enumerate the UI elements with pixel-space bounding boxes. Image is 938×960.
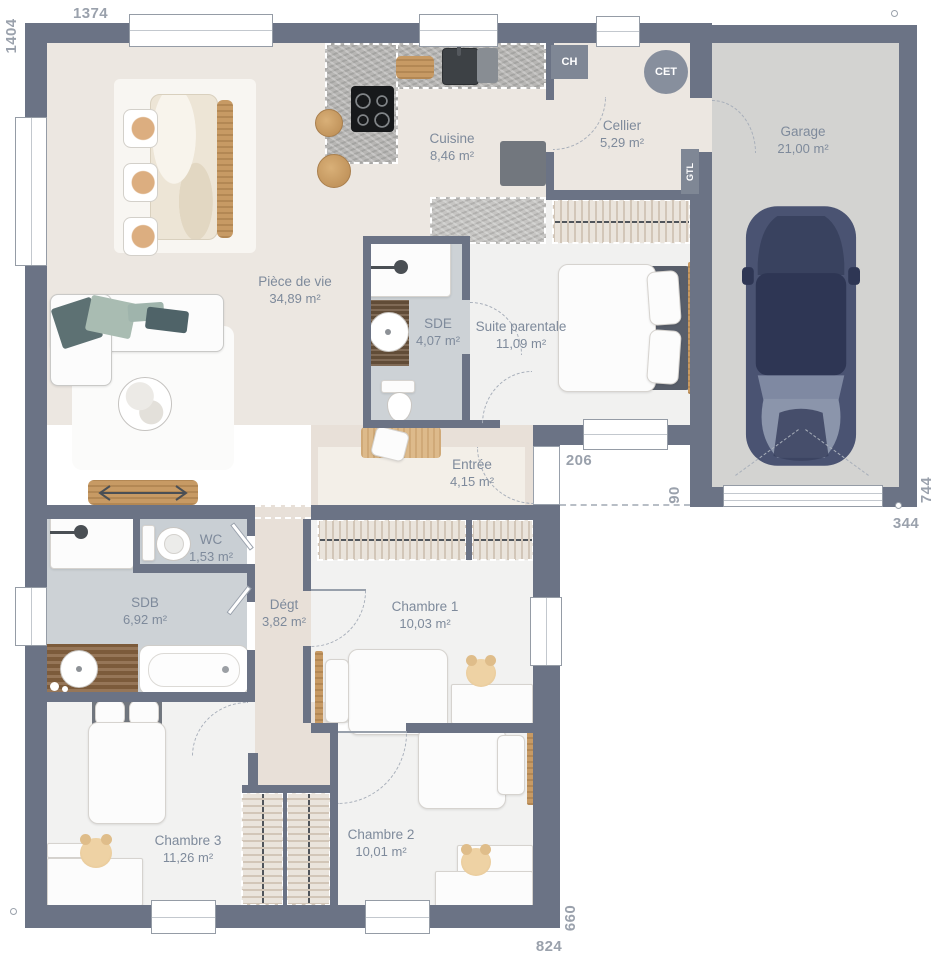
ch1-headboard <box>315 651 323 733</box>
dining-table <box>150 94 218 240</box>
room-label-garage: Garage 21,00 m² <box>733 123 873 157</box>
room-label-chambre2: Chambre 2 10,01 m² <box>311 826 451 860</box>
cutting-board <box>396 56 434 79</box>
window-living-top <box>129 14 273 47</box>
ch2-pillow <box>497 735 525 795</box>
room-label-chambre1: Chambre 1 10,03 m² <box>355 598 495 632</box>
sde-shower-head <box>394 260 408 274</box>
ch3-duvet <box>88 722 166 824</box>
window-kitchen-top <box>419 14 498 47</box>
dimension-garage-width: 344 <box>876 516 936 532</box>
dimension-bottom-width: 824 <box>519 939 579 955</box>
room-name: Garage <box>733 123 873 140</box>
wall-sde-right-b <box>462 354 470 428</box>
ch2-duvet <box>418 727 506 809</box>
teddy-bear <box>466 659 496 687</box>
room-label-chambre3: Chambre 3 11,26 m² <box>118 832 258 866</box>
room-area: 11,26 m² <box>118 849 258 866</box>
wall-exterior-bottom <box>25 905 560 928</box>
wall-wardrobe-top <box>242 785 338 793</box>
teddy-bear <box>461 848 491 876</box>
wall-ch1-ch2-a <box>311 723 338 733</box>
room-label-sdb: SDB 6,92 m² <box>75 594 215 628</box>
floor-plan: CH CET GTL Pièce de vie 34,89 m² Cuisine… <box>0 0 938 960</box>
window-suite-porch <box>583 419 668 450</box>
room-name: Dégt <box>214 596 354 613</box>
teddy-ear <box>461 844 472 855</box>
teddy-ear <box>101 834 112 845</box>
teddy-ear <box>480 844 491 855</box>
bathtub-drain <box>222 666 229 673</box>
opening-entree-corridor <box>255 505 311 519</box>
room-label-entree: Entrée 4,15 m² <box>402 456 542 490</box>
room-name: Chambre 3 <box>118 832 258 849</box>
electrical-column-label: GTL <box>685 163 695 181</box>
dimension-left-height: 1404 <box>4 1 20 71</box>
window-sdb-left <box>15 587 47 646</box>
room-label-degagement: Dégt 3,82 m² <box>214 596 354 630</box>
dimension-garage-side: 744 <box>919 460 935 520</box>
room-area: 8,46 m² <box>382 147 522 164</box>
sdb-sink-drain <box>76 666 82 672</box>
teddy-ear <box>485 655 496 666</box>
stove <box>351 86 394 132</box>
wall-chambre1-top <box>311 505 533 520</box>
wall-wc-bottom <box>133 564 255 573</box>
wall-sde-right-a <box>462 236 470 300</box>
room-name: Cellier <box>552 117 692 134</box>
water-heater-label: CET <box>655 66 677 78</box>
dining-chair <box>123 217 158 256</box>
room-name: Pièce de vie <box>225 273 365 290</box>
wall-ch1-left-b <box>303 646 311 723</box>
dimension-value: 1404 <box>3 19 20 54</box>
room-area: 1,53 m² <box>141 548 281 565</box>
survey-marker <box>10 908 17 915</box>
wall-sdb-bottom <box>25 692 255 702</box>
wall-ch3-ch2 <box>330 723 338 905</box>
window-living-left <box>15 117 47 266</box>
garage-door <box>723 485 883 507</box>
wall-sde-top <box>363 236 470 244</box>
room-name: Suite parentale <box>451 318 591 335</box>
window-cellier-top <box>596 16 640 47</box>
suite-pillow <box>646 270 682 326</box>
dimension-porch-depth: 90 <box>667 465 683 525</box>
dimension-value: 206 <box>566 452 592 469</box>
closet-chambre1-b <box>472 520 533 560</box>
dining-chair <box>123 109 158 148</box>
dimension-value: 90 <box>666 486 683 504</box>
dimension-top-width: 1374 <box>73 6 143 22</box>
stool <box>317 154 351 188</box>
closet-divider-ch3 <box>283 793 287 905</box>
sdb-soap-dish <box>50 682 59 691</box>
teddy-ear <box>80 834 91 845</box>
room-label-wc: WC 1,53 m² <box>141 531 281 565</box>
electrical-column-box: GTL <box>681 149 699 194</box>
ch1-desk <box>451 684 533 724</box>
water-heater-circle: CET <box>644 50 688 94</box>
wall-sde-bottom <box>363 420 470 428</box>
boiler-box: CH <box>551 45 588 79</box>
room-area: 34,89 m² <box>225 290 365 307</box>
room-area: 6,92 m² <box>75 611 215 628</box>
sdb-shower-head <box>74 525 88 539</box>
wall-hall-top-left <box>25 505 255 519</box>
sdb-shower <box>50 515 134 569</box>
wall-wc-left <box>133 519 140 566</box>
window-chambre2-bottom <box>365 900 430 934</box>
survey-marker <box>891 10 898 17</box>
wall-garage-right <box>899 25 917 507</box>
room-label-cellier: Cellier 5,29 m² <box>552 117 692 151</box>
coffee-table <box>118 377 172 431</box>
room-label-piece-de-vie: Pièce de vie 34,89 m² <box>225 273 365 307</box>
wall-garage-top <box>690 25 917 43</box>
dimension-value: 344 <box>893 515 919 532</box>
room-area: 4,15 m² <box>402 473 542 490</box>
opening-cellier-garage <box>690 98 712 152</box>
room-area: 10,03 m² <box>355 615 495 632</box>
dimension-porch-width: 206 <box>549 453 609 469</box>
room-label-cuisine: Cuisine 8,46 m² <box>382 130 522 164</box>
room-area: 21,00 m² <box>733 140 873 157</box>
dimension-value: 660 <box>562 905 579 931</box>
room-name: SDB <box>75 594 215 611</box>
room-area: 11,09 m² <box>451 335 591 352</box>
wall-ch1-ch2-b <box>406 723 533 733</box>
stool <box>315 109 343 137</box>
closet-divider-ch1 <box>466 520 472 560</box>
room-name: Cuisine <box>382 130 522 147</box>
room-name: Entrée <box>402 456 542 473</box>
suite-pillow <box>646 329 682 385</box>
room-area: 3,82 m² <box>214 613 354 630</box>
closet-suite-dressing <box>553 200 690 243</box>
room-name: Chambre 1 <box>355 598 495 615</box>
teddy-bear <box>80 838 112 868</box>
window-chambre3-bottom <box>151 900 216 934</box>
window-chambre1-right <box>530 597 562 666</box>
dimension-value: 824 <box>536 938 562 955</box>
ch1-pillow <box>325 659 349 723</box>
closet-chambre1-a <box>318 520 466 560</box>
teddy-ear <box>466 655 477 666</box>
room-area: 10,01 m² <box>311 843 451 860</box>
car-top-view <box>742 200 860 472</box>
boiler-label: CH <box>562 56 578 68</box>
survey-marker <box>895 502 902 509</box>
dining-chair <box>123 163 158 202</box>
room-name: Chambre 2 <box>311 826 451 843</box>
double-arrow-icon <box>88 480 198 505</box>
dimension-value: 744 <box>918 477 935 503</box>
ch2-desk <box>435 871 533 907</box>
room-label-suite-parentale: Suite parentale 11,09 m² <box>451 318 591 352</box>
dining-bench <box>217 100 233 238</box>
entry-bench <box>88 480 198 505</box>
room-area: 5,29 m² <box>552 134 692 151</box>
room-name: WC <box>141 531 281 548</box>
drainboard <box>477 48 498 83</box>
dimension-value: 1374 <box>73 5 108 22</box>
